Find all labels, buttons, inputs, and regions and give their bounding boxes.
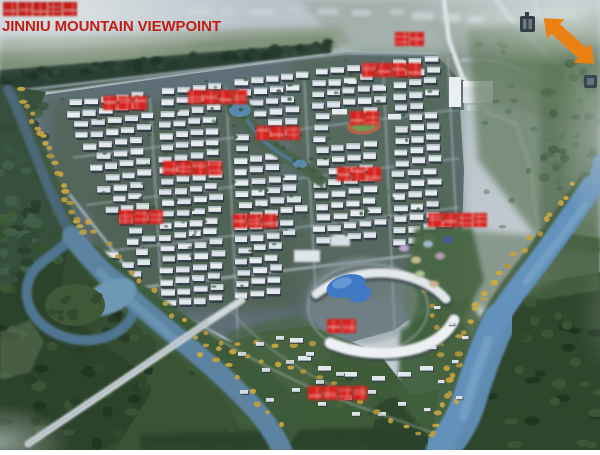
svg-text:JINNIU MOUNTAIN VIEWPOINT: JINNIU MOUNTAIN VIEWPOINT bbox=[2, 18, 221, 35]
